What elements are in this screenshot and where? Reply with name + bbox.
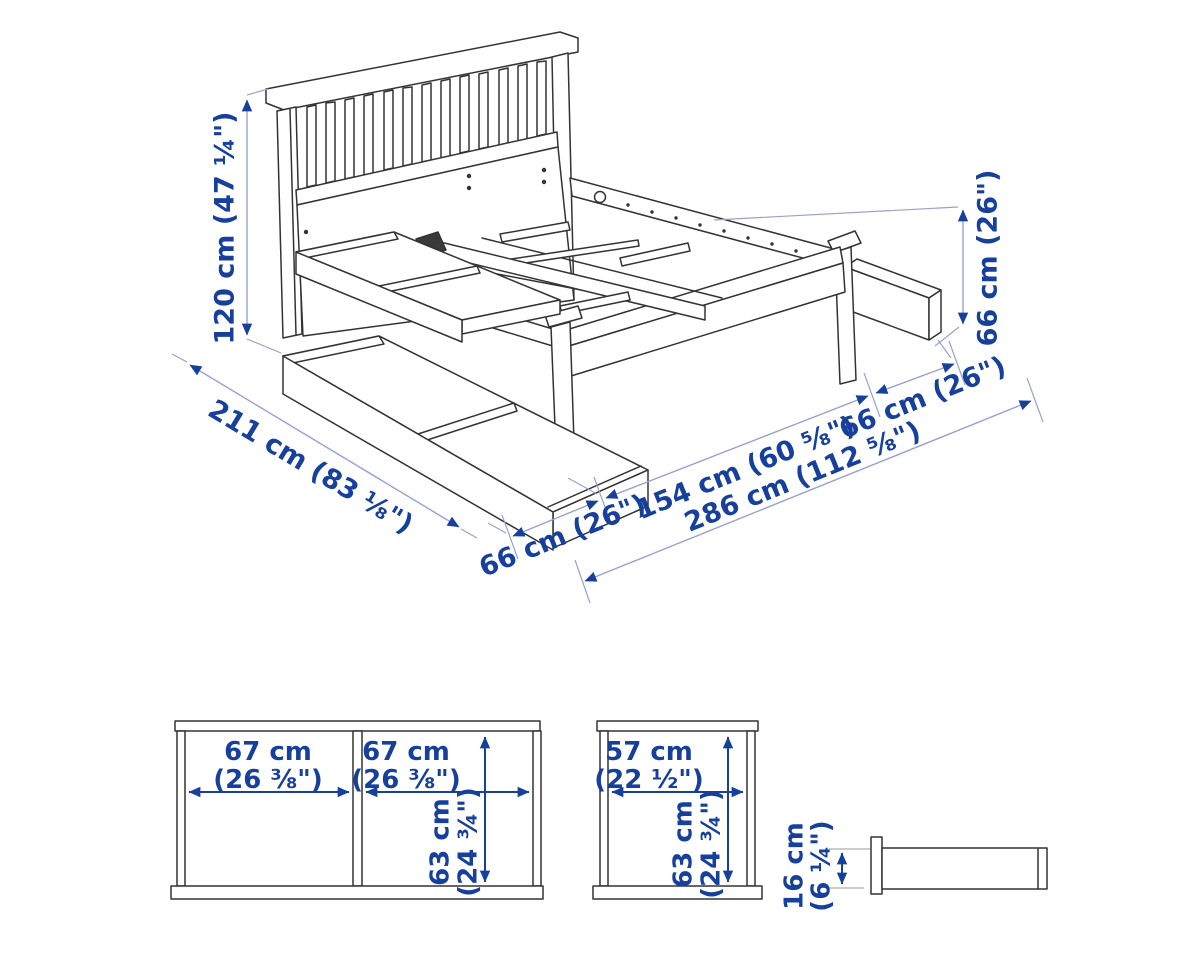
width-b-label: 67 cm — [362, 737, 450, 767]
box-right-wall — [533, 731, 541, 886]
height-inches-label: (6 ¼") — [807, 820, 837, 911]
depth-inches-label: (24 ¾") — [697, 789, 727, 898]
side-end-cap — [871, 837, 882, 894]
height-label: 16 cm — [780, 822, 810, 910]
bed-dimensions-diagram: 120 cm (47 ¼") 66 cm (26") 211 cm (83 ⅛"… — [0, 0, 1200, 953]
storage-box-right — [845, 259, 941, 340]
diagram-canvas: 120 cm (47 ¼") 66 cm (26") 211 cm (83 ⅛"… — [0, 0, 1200, 953]
detail-view-large-box: 67 cm (26 ⅜") 67 cm (26 ⅜") 63 cm (24 ¾"… — [171, 721, 543, 899]
footboard — [566, 231, 861, 384]
box-top-edge — [597, 721, 758, 731]
box-top-edge — [175, 721, 540, 731]
box-right-wall — [747, 731, 755, 886]
box-left-wall — [177, 731, 185, 886]
depth-inches-label: (24 ¾") — [454, 787, 484, 896]
side-rail — [882, 848, 1047, 889]
box-center-divider — [353, 731, 362, 886]
detail-view-box-side: 16 cm (6 ¼") — [780, 820, 1048, 911]
width-a-label: 67 cm — [224, 737, 312, 767]
dim-box-height-right-label: 66 cm (26") — [973, 170, 1004, 347]
side-rail-far — [570, 178, 840, 268]
far-rail-band — [570, 178, 840, 268]
width-label: 57 cm — [605, 737, 693, 767]
box-bottom-edge — [171, 886, 543, 899]
dim-height-label: 120 cm (47 ¼") — [210, 112, 241, 345]
width-b-inches-label: (26 ⅜") — [351, 765, 460, 795]
rail-hole — [595, 192, 606, 203]
detail-view-small-box: 57 cm (22 ½") 63 cm (24 ¾") — [593, 721, 762, 899]
width-a-inches-label: (26 ⅜") — [213, 765, 322, 795]
depth-label: 63 cm — [669, 800, 699, 888]
width-inches-label: (22 ½") — [594, 765, 703, 795]
depth-label: 63 cm — [426, 798, 456, 886]
